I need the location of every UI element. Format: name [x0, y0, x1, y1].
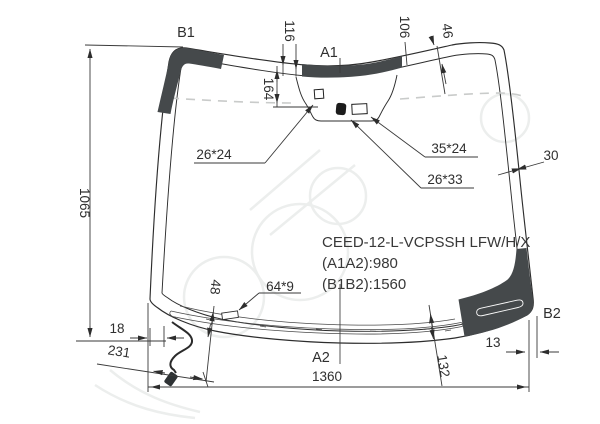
wire-connector — [164, 371, 179, 387]
dim-glass-height: 1065 — [77, 188, 92, 218]
ceramic-band-dashed-line — [170, 93, 522, 103]
b1-corner-patch — [158, 48, 225, 114]
dim-side-band-right: 30 — [543, 148, 558, 163]
label-b2: B2 — [543, 306, 561, 322]
b-span: (B1B2):1560 — [322, 276, 406, 293]
a-span: (A1A2):980 — [322, 255, 398, 272]
label-a2: A2 — [312, 350, 330, 366]
dim-bottom-band: 132 — [434, 354, 452, 379]
diagram-canvas: B1 A1 A2 B2 116 164 106 46 30 1065 26*24… — [0, 0, 600, 424]
dim-mirror-height: 164 — [261, 78, 276, 101]
label-a1: A1 — [320, 45, 338, 61]
dim-wire-length: 231 — [107, 342, 132, 360]
dim-band-width-top-right: 46 — [439, 23, 456, 40]
dim-bottom-corner-right: 13 — [485, 335, 500, 350]
dim-top-band-left: 116 — [282, 20, 297, 42]
title-block: CEED-12-L-VCPSSH LFW/H/X (A1A2):980 (B1B… — [322, 234, 530, 293]
label-b1: B1 — [177, 25, 195, 41]
model-code: CEED-12-L-VCPSSH LFW/H/X — [322, 234, 530, 251]
dim-glass-width: 1360 — [312, 369, 342, 384]
dim-sensor-center: 26*33 — [427, 172, 462, 187]
dim-wire-edge-offset: 18 — [109, 321, 124, 336]
heater-wire — [164, 311, 239, 387]
windshield-diagram: B1 A1 A2 B2 116 164 106 46 30 1065 26*24… — [0, 0, 600, 424]
dim-connector-offset: 48 — [207, 279, 223, 296]
b2-corner-patch — [459, 248, 534, 337]
dim-sensor-right: 35*24 — [431, 141, 467, 156]
dim-top-band-right: 106 — [397, 16, 412, 39]
sensor-right-mark — [352, 104, 368, 115]
dim-mirror-button: 26*24 — [196, 147, 232, 162]
sensor-center-mark — [335, 103, 346, 116]
connector-pad — [222, 311, 239, 320]
mirror-button-mark — [314, 89, 324, 99]
dim-connector-size: 64*9 — [266, 279, 294, 294]
wire — [170, 322, 192, 373]
sensor-housing — [296, 75, 397, 121]
